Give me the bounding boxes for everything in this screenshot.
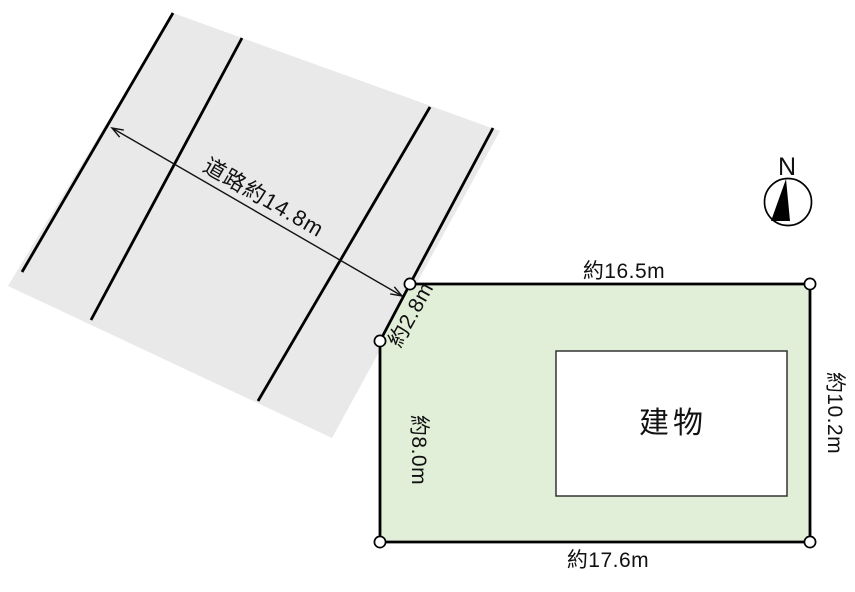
compass-needle-icon xyxy=(771,179,790,221)
site-plan-diagram: 道路約14.8m 建物 約16.5m 約17.6m 約10.2m 約8.0m 約… xyxy=(0,0,855,592)
site-plan-canvas: 道路約14.8m 建物 約16.5m 約17.6m 約10.2m 約8.0m 約… xyxy=(0,0,855,592)
plot-vertex-marker xyxy=(804,278,815,289)
compass: N xyxy=(765,153,812,226)
plot-vertex-marker xyxy=(804,536,815,547)
plot-vertex-marker xyxy=(374,335,385,346)
building-label: 建物 xyxy=(639,407,707,440)
land-plot: 建物 約16.5m 約17.6m 約10.2m 約8.0m 約2.8m xyxy=(374,260,846,572)
plot-vertex-marker xyxy=(404,278,415,289)
dim-left-label: 約8.0m xyxy=(407,415,430,485)
plot-vertex-marker xyxy=(374,536,385,547)
compass-north-label: N xyxy=(778,153,796,181)
dim-top-label: 約16.5m xyxy=(583,260,665,283)
dim-right-label: 約10.2m xyxy=(823,372,846,454)
dim-bottom-label: 約17.6m xyxy=(567,549,649,572)
